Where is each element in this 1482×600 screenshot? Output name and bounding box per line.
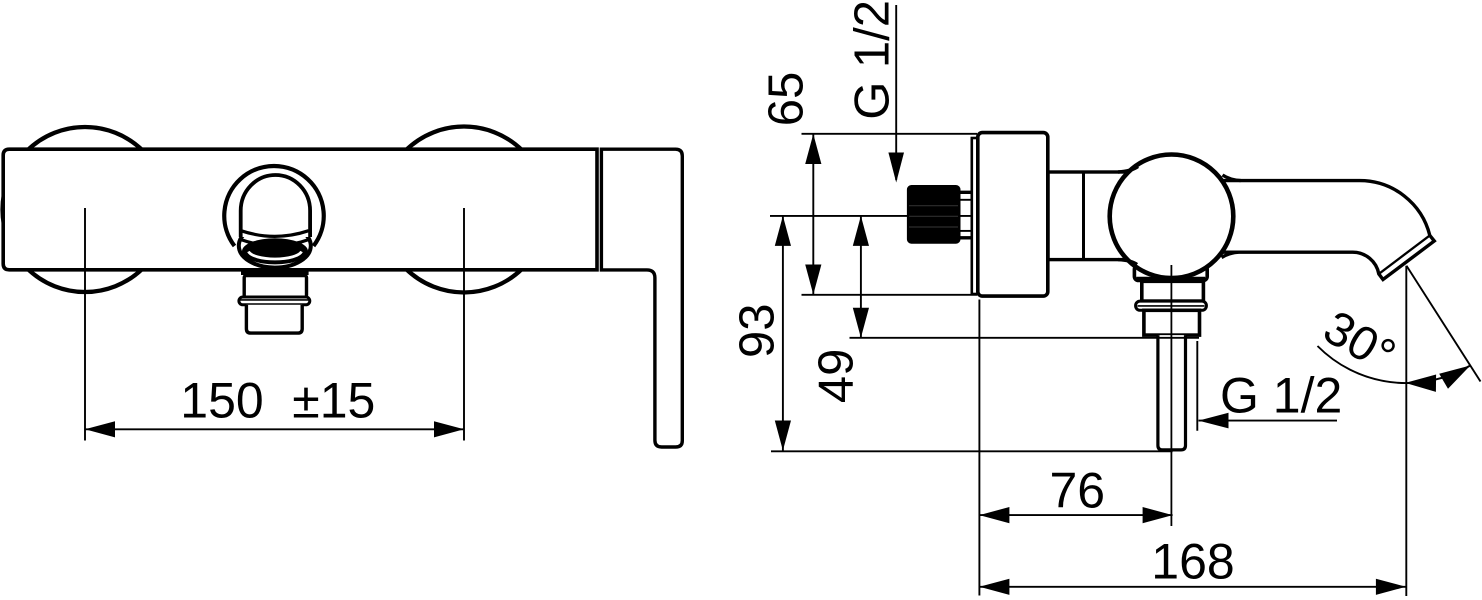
- svg-text:76: 76: [1049, 463, 1105, 519]
- svg-text:49: 49: [810, 349, 864, 404]
- svg-text:93: 93: [731, 303, 785, 358]
- svg-text:±15: ±15: [292, 373, 375, 429]
- svg-text:G 1/2: G 1/2: [1220, 368, 1342, 424]
- svg-text:168: 168: [1151, 534, 1234, 590]
- svg-text:150: 150: [180, 373, 263, 429]
- svg-text:G 1/2: G 1/2: [845, 0, 899, 120]
- svg-text:65: 65: [760, 72, 814, 127]
